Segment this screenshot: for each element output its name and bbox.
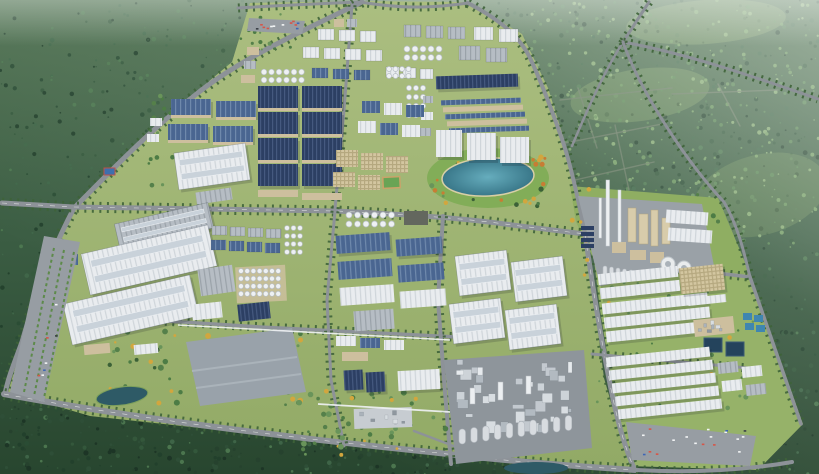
- office-block: [150, 118, 162, 126]
- solar-roof-building: [365, 372, 385, 393]
- greenhouse-grid: [361, 153, 383, 170]
- navy-roof-hall: [237, 301, 271, 321]
- small-hall: [741, 365, 762, 378]
- sports-field: [383, 177, 401, 189]
- small-hall: [384, 103, 402, 115]
- office-block: [147, 134, 159, 142]
- blue-roof-warehouse: [171, 99, 211, 115]
- wall-strip: [171, 115, 211, 118]
- wall-strip: [258, 134, 298, 137]
- plant-tower: [470, 388, 475, 404]
- treatment-pool: [726, 342, 744, 356]
- utility-block: [419, 128, 431, 136]
- office-block: [134, 343, 159, 355]
- grid-roof-building: [197, 265, 235, 297]
- preheater-tower: [651, 210, 658, 246]
- solar-roof-warehouse: [302, 112, 342, 134]
- large-pale-hall: [505, 304, 561, 350]
- solar-panel-row: [581, 238, 594, 242]
- utility-block: [423, 96, 433, 103]
- chimney: [606, 180, 610, 246]
- plant-building: [630, 250, 646, 260]
- blue-roof-warehouse: [397, 262, 444, 282]
- dark-utility-building: [404, 211, 428, 225]
- chimney: [618, 190, 621, 242]
- solar-panel-row: [581, 226, 594, 230]
- small-hall: [362, 101, 380, 113]
- industrial-park-aerial-rendering: [0, 0, 819, 474]
- office-block: [244, 61, 256, 69]
- blue-roof-warehouse: [335, 232, 390, 254]
- office-strip: [302, 193, 342, 200]
- solar-roof-warehouse: [258, 164, 298, 186]
- carport-grid: [353, 309, 394, 332]
- wall-strip: [302, 134, 342, 137]
- office-strip: [258, 190, 298, 197]
- wall-strip: [168, 140, 208, 143]
- greenhouse-grid: [386, 156, 408, 173]
- white-warehouse: [399, 288, 446, 308]
- factory-row: [318, 29, 376, 42]
- sports-court: [104, 168, 115, 175]
- flat-gray-factory: [186, 328, 306, 406]
- small-hall: [717, 361, 738, 374]
- greenhouse-grid: [336, 150, 358, 167]
- office-block: [241, 75, 255, 83]
- small-hall: [402, 125, 420, 137]
- blue-pool: [756, 325, 765, 332]
- greenhouse-grid: [333, 172, 355, 187]
- white-warehouse: [339, 284, 394, 306]
- solar-roof-building: [343, 370, 363, 391]
- wall-strip: [258, 160, 298, 163]
- small-hall: [380, 123, 398, 135]
- small-hall: [406, 105, 424, 117]
- office-block: [347, 19, 357, 27]
- solar-roof-warehouse: [258, 112, 298, 134]
- greenhouse-grid: [358, 175, 380, 190]
- solar-panel-row: [581, 232, 594, 236]
- scene-root: [0, 0, 819, 474]
- plant-tower: [526, 376, 531, 394]
- blue-roof-warehouse: [213, 126, 253, 142]
- white-hall: [191, 301, 223, 320]
- small-hall: [384, 340, 404, 350]
- blue-pool: [754, 315, 763, 322]
- blue-pool: [743, 313, 752, 320]
- wall-strip: [302, 108, 342, 111]
- plant-tower: [498, 382, 503, 400]
- chimney: [599, 198, 602, 238]
- factory-row: [404, 25, 465, 39]
- cooling-tower-mouth: [665, 261, 671, 267]
- small-hall: [336, 336, 356, 346]
- pond: [504, 462, 568, 474]
- white-warehouse: [398, 369, 441, 391]
- gabled-hall: [436, 130, 462, 157]
- solar-roof-warehouse: [258, 86, 298, 108]
- blue-roof-warehouse: [168, 124, 208, 140]
- wall-strip: [258, 108, 298, 111]
- aerial-scene: [0, 0, 819, 474]
- blue-roof-warehouse: [216, 101, 256, 117]
- blue-roof-warehouse: [337, 258, 392, 280]
- preheater-tower: [628, 208, 636, 242]
- gabled-hall: [500, 137, 529, 163]
- utility-station: [354, 407, 413, 429]
- wall-strip: [213, 142, 253, 145]
- office-block: [334, 19, 344, 27]
- blue-pool: [745, 323, 754, 330]
- small-hall: [745, 383, 766, 396]
- preheater-tower: [639, 214, 648, 244]
- plant-building: [612, 242, 626, 253]
- gabled-hall: [467, 133, 496, 160]
- small-hall: [360, 338, 380, 348]
- solar-roof-warehouse: [258, 138, 298, 160]
- tan-grid-building: [679, 264, 725, 294]
- solar-roof-warehouse: [302, 86, 342, 108]
- office-block: [247, 47, 259, 55]
- large-pale-hall: [511, 256, 567, 302]
- blue-roof-warehouse: [395, 236, 442, 256]
- wall-strip: [216, 117, 256, 120]
- office-strip: [342, 352, 368, 361]
- small-hall: [721, 379, 742, 392]
- large-pale-hall: [449, 298, 505, 344]
- large-pale-hall: [455, 250, 511, 296]
- factory-row: [312, 68, 370, 80]
- solar-panel-row: [581, 244, 594, 248]
- small-hall: [358, 121, 376, 133]
